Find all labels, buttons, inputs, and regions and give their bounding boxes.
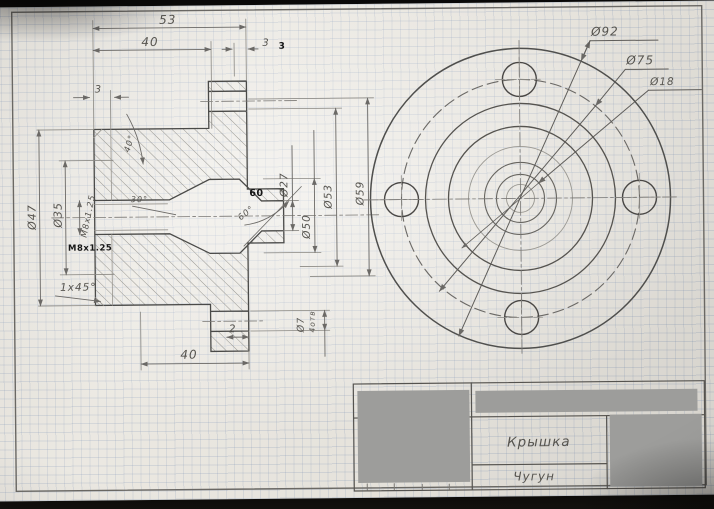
- dim-d50: Ø50: [301, 214, 313, 240]
- redaction-top: [475, 389, 697, 413]
- title-block: Крышка Чугун: [353, 381, 705, 491]
- dim-angle-60-bold: 60: [249, 188, 263, 199]
- dim-d92: Ø92: [590, 24, 619, 38]
- dim-angle-60: 60°: [236, 204, 256, 223]
- dim-40-top: 40: [141, 35, 158, 49]
- front-view: Ø92 Ø75 Ø18: [362, 24, 704, 358]
- dim-d47: Ø47: [26, 204, 39, 231]
- dim-2: 2: [229, 323, 237, 335]
- section-view: 53 40 3 3 3 Ø47 Ø35 М8х1.25 M8x1.25 1х45…: [24, 11, 383, 371]
- dim-d27: Ø27: [278, 172, 290, 198]
- dim-3-right: 3: [262, 38, 269, 49]
- dim-40-bottom: 40: [180, 348, 197, 362]
- dim-d59: Ø59: [354, 181, 366, 207]
- title-part-name: Крышка: [507, 434, 571, 451]
- dim-d7: Ø7: [296, 317, 307, 334]
- dim-3-right-bold: 3: [279, 42, 286, 52]
- dim-angle-30: 30°: [131, 195, 148, 204]
- dim-d53: Ø53: [322, 184, 334, 210]
- dim-3-left: 3: [95, 84, 102, 95]
- frame-tick-marks: [367, 483, 449, 490]
- dim-4otv: 4отв: [308, 310, 317, 332]
- graph-paper-sheet: 53 40 3 3 3 Ø47 Ø35 М8х1.25 M8x1.25 1х45…: [0, 1, 714, 502]
- dim-d75: Ø75: [625, 53, 654, 67]
- title-material: Чугун: [513, 469, 555, 483]
- redaction-left: [357, 390, 470, 483]
- dim-thread-bold: M8x1.25: [68, 243, 112, 253]
- dim-chamfer: 1х45°: [60, 282, 97, 294]
- redaction-right: [610, 414, 703, 487]
- dim-53: 53: [159, 13, 176, 27]
- photo-of-drawing: 53 40 3 3 3 Ø47 Ø35 М8х1.25 M8x1.25 1х45…: [0, 0, 714, 509]
- dim-d35: Ø35: [52, 202, 65, 229]
- pencil-drawing: 53 40 3 3 3 Ø47 Ø35 М8х1.25 M8x1.25 1х45…: [0, 1, 714, 502]
- dim-d18: Ø18: [649, 76, 675, 88]
